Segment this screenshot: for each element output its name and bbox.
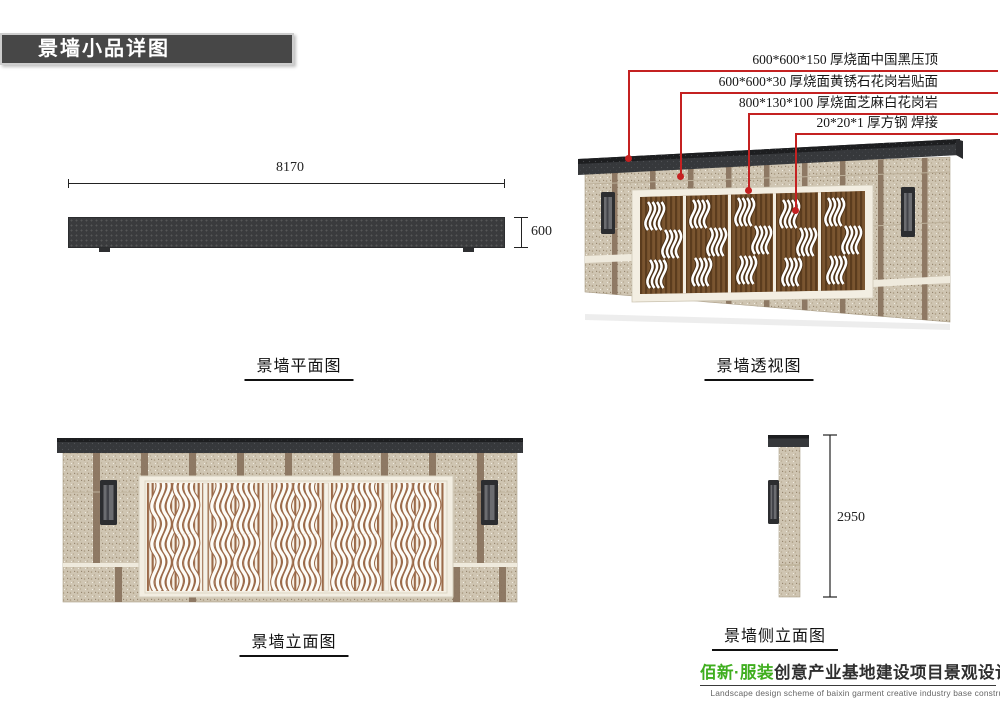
leader-dot: [625, 155, 632, 162]
leader-line: [748, 113, 750, 190]
dimension-tick: [514, 247, 528, 248]
plan-view-caption: 景墙平面图: [244, 352, 353, 381]
leader-dot: [677, 173, 684, 180]
side-view-drawing: 2950: [735, 428, 885, 608]
elevation-view-drawing: [55, 430, 525, 605]
leader-dot: [745, 187, 752, 194]
plan-wall-foot: [99, 248, 110, 252]
wall-lamp: [901, 187, 915, 237]
side-height-dimension: [823, 435, 837, 597]
annotation-label: 800*130*100 厚烧面芝麻白花岗岩: [739, 94, 938, 112]
project-title-zh: 佰新·服装创意产业基地建设项目景观设计方案: [700, 659, 996, 683]
project-title-rest: 创意产业基地建设项目景观设计方案: [774, 664, 1000, 682]
wall-lamp: [768, 480, 779, 524]
leader-line: [628, 70, 998, 72]
leader-line: [795, 133, 797, 210]
elevation-cap-stone: [57, 438, 523, 453]
perspective-view-drawing: [570, 130, 970, 345]
dimension-tick: [68, 179, 69, 188]
annotation-label: 20*20*1 厚方钢 焊接: [817, 114, 939, 132]
project-title-en: Landscape design scheme of baixin garmen…: [710, 688, 985, 697]
wall-lamp: [481, 480, 498, 525]
dimension-tick: [514, 217, 528, 218]
plan-length-value: 8170: [240, 160, 340, 176]
leader-line: [795, 133, 998, 135]
annotation-label: 600*600*30 厚烧面黄锈石花岗岩贴面: [719, 73, 938, 91]
side-cap-stone: [768, 435, 809, 447]
wall-lamp: [601, 192, 615, 234]
footer-divider: [700, 685, 996, 686]
sheet-title: 景墙小品详图: [2, 35, 292, 63]
leader-line: [680, 92, 998, 94]
plan-depth-value: 600: [531, 224, 552, 240]
leader-line: [680, 92, 682, 176]
plan-wall-bar: [68, 217, 505, 248]
annotation-label: 600*600*150 厚烧面中国黑压顶: [752, 51, 938, 69]
side-view-caption: 景墙侧立面图: [712, 622, 838, 651]
plan-depth-dimension-line: [521, 217, 522, 248]
sheet-title-banner: 景墙小品详图: [0, 33, 294, 65]
leader-line: [748, 113, 998, 115]
leader-dot: [792, 207, 799, 214]
dimension-tick: [504, 179, 505, 188]
plan-length-dimension-line: [68, 183, 505, 184]
wall-lamp: [100, 480, 117, 525]
plan-wall-foot: [463, 248, 474, 252]
side-height-value: 2950: [837, 510, 865, 525]
side-stone-column: [779, 446, 800, 597]
perspective-view-caption: 景墙透视图: [704, 352, 813, 381]
project-footer: 佰新·服装创意产业基地建设项目景观设计方案 Landscape design s…: [700, 659, 996, 698]
elevation-view-caption: 景墙立面图: [239, 628, 348, 657]
leader-line: [628, 70, 630, 158]
perspective-screen-panel: [632, 185, 873, 302]
project-brand: 佰新·服装: [700, 664, 774, 682]
drawing-sheet: 景墙小品详图 8170 600 景墙平面图: [0, 0, 1000, 707]
